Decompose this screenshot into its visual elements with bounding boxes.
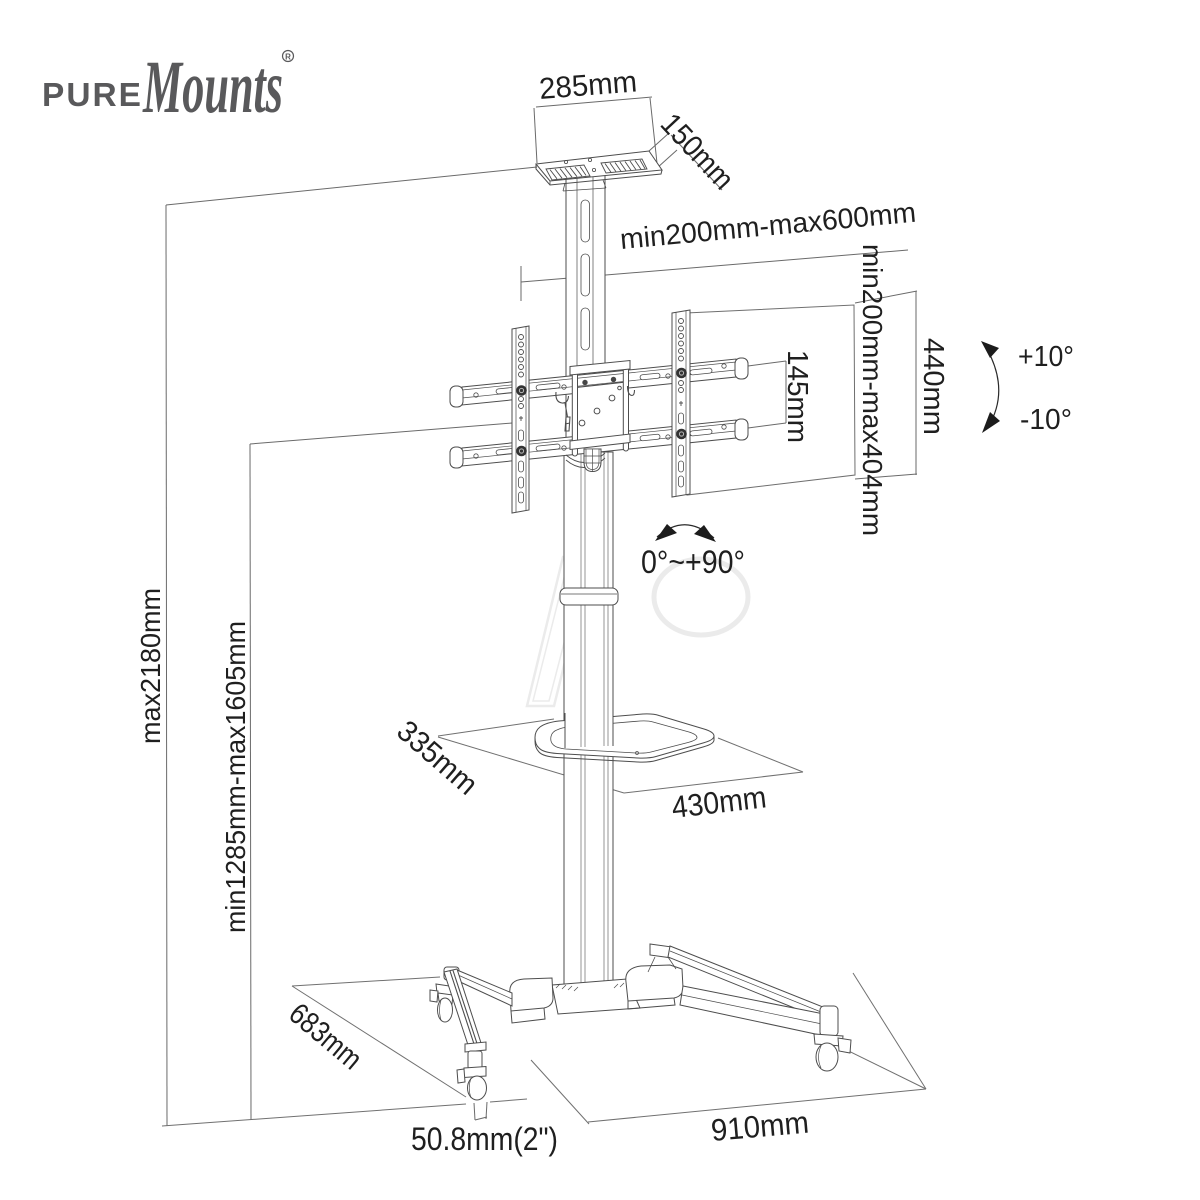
svg-text:440mm: 440mm [917, 338, 949, 435]
svg-text:Mounts: Mounts [142, 46, 283, 129]
svg-text:min200mm-max404mm: min200mm-max404mm [857, 244, 888, 536]
svg-text:+10°: +10° [1018, 341, 1074, 373]
svg-text:R: R [285, 53, 291, 62]
svg-text:145mm: 145mm [781, 350, 813, 443]
svg-text:max2180mm: max2180mm [135, 588, 166, 744]
svg-text:min1285mm-max1605mm: min1285mm-max1605mm [220, 621, 251, 933]
svg-text:-10°: -10° [1020, 404, 1072, 436]
svg-text:PURE: PURE [42, 76, 143, 113]
svg-text:0°~+90°: 0°~+90° [641, 544, 745, 580]
svg-text:50.8mm(2"): 50.8mm(2") [411, 1121, 558, 1157]
